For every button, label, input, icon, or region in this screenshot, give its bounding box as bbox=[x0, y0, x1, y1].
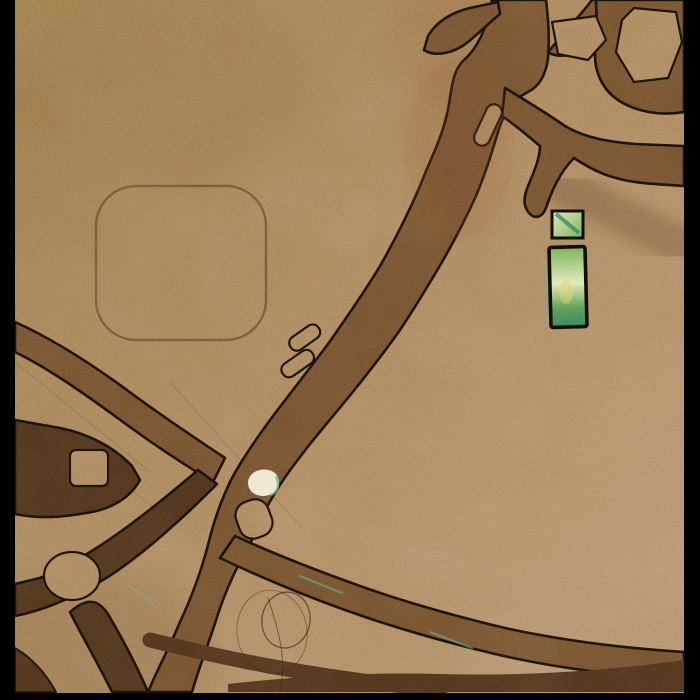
painting-surface bbox=[0, 0, 700, 700]
letterbox-left bbox=[0, 0, 15, 700]
artwork-svg bbox=[0, 0, 700, 700]
letterbox-right bbox=[684, 0, 700, 700]
sand-grain-texture bbox=[15, 0, 684, 693]
letterbox-bottom bbox=[0, 693, 700, 700]
artwork-stage bbox=[0, 0, 700, 700]
